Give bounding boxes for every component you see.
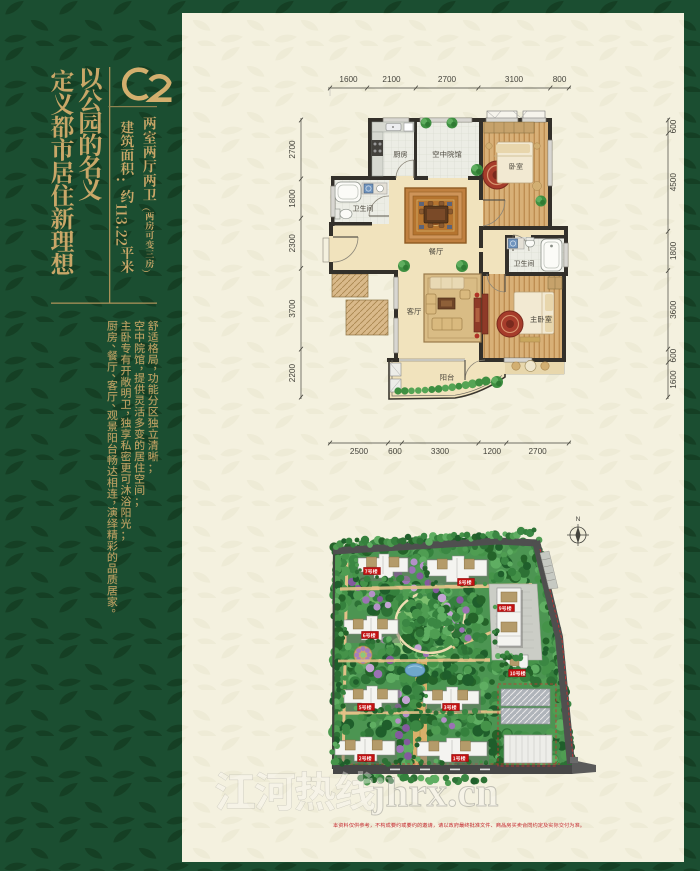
svg-text:600: 600 <box>388 447 402 456</box>
svg-text:3700: 3700 <box>288 299 297 318</box>
svg-text:4500: 4500 <box>669 173 678 192</box>
svg-text:N: N <box>576 516 581 523</box>
svg-text:1800: 1800 <box>669 241 678 260</box>
svg-text:2700: 2700 <box>438 75 457 84</box>
svg-text:600: 600 <box>669 119 678 133</box>
svg-text:3600: 3600 <box>669 300 678 319</box>
svg-text:2100: 2100 <box>382 75 401 84</box>
svg-text:3100: 3100 <box>505 75 524 84</box>
svg-text:2200: 2200 <box>288 364 297 383</box>
svg-text:jhrx.cn: jhrx.cn <box>371 769 499 815</box>
svg-text:2300: 2300 <box>288 234 297 253</box>
svg-text:2700: 2700 <box>288 140 297 159</box>
svg-text:2700: 2700 <box>528 447 547 456</box>
svg-text:800: 800 <box>553 75 567 84</box>
svg-text:600: 600 <box>669 348 678 362</box>
svg-text:1800: 1800 <box>288 189 297 208</box>
svg-text:2500: 2500 <box>350 447 369 456</box>
svg-text:1600: 1600 <box>669 370 678 389</box>
svg-text:3300: 3300 <box>431 447 450 456</box>
svg-text:1200: 1200 <box>483 447 502 456</box>
svg-text:1600: 1600 <box>339 75 358 84</box>
